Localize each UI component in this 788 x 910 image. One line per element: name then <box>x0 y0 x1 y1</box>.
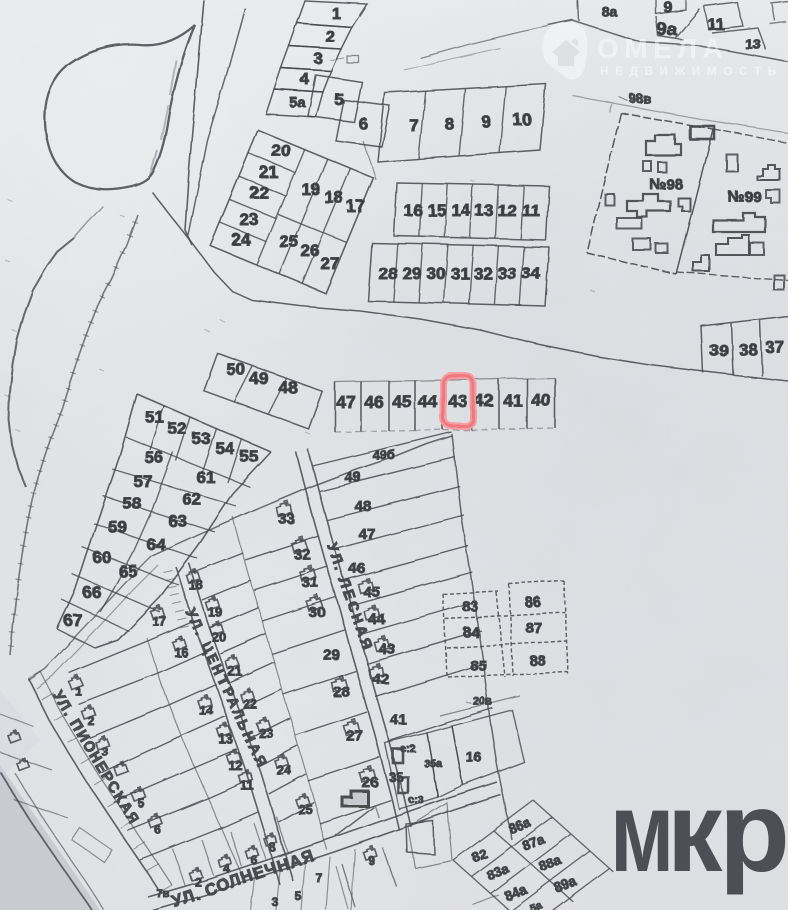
svg-text:9: 9 <box>369 854 376 868</box>
svg-text:47: 47 <box>336 392 355 412</box>
svg-text:14: 14 <box>452 201 471 220</box>
svg-text:60: 60 <box>93 548 112 567</box>
svg-text:10: 10 <box>513 110 532 129</box>
svg-text:39: 39 <box>710 341 729 360</box>
svg-text:57: 57 <box>134 472 153 491</box>
svg-text:54: 54 <box>216 439 235 458</box>
svg-text:23: 23 <box>240 210 259 229</box>
svg-text:41: 41 <box>503 391 523 411</box>
svg-text:49: 49 <box>250 369 269 388</box>
svg-text:29: 29 <box>323 646 340 663</box>
svg-text:26: 26 <box>301 241 320 260</box>
svg-text:15: 15 <box>428 201 447 220</box>
svg-text:31: 31 <box>451 264 470 283</box>
svg-text:42: 42 <box>373 671 390 688</box>
svg-text:67: 67 <box>64 611 83 630</box>
svg-text:с:2: с:2 <box>400 743 415 755</box>
svg-text:к: к <box>667 767 723 895</box>
svg-text:3: 3 <box>314 51 323 68</box>
svg-text:41: 41 <box>391 712 408 729</box>
svg-text:7: 7 <box>316 871 323 885</box>
svg-text:20в: 20в <box>474 696 493 708</box>
svg-text:42: 42 <box>474 391 494 411</box>
svg-text:35а: 35а <box>424 758 443 770</box>
svg-text:37: 37 <box>766 338 785 357</box>
svg-text:87: 87 <box>526 621 542 637</box>
svg-text:13: 13 <box>745 36 761 52</box>
svg-text:47: 47 <box>359 526 376 543</box>
svg-text:24: 24 <box>232 230 251 249</box>
svg-text:32: 32 <box>474 264 493 283</box>
svg-text:НЕДВИЖИМОСТЬ: НЕДВИЖИМОСТЬ <box>600 66 783 78</box>
svg-text:7: 7 <box>409 116 418 135</box>
svg-text:18: 18 <box>325 188 344 207</box>
svg-text:16: 16 <box>466 749 482 765</box>
svg-text:53: 53 <box>192 429 211 448</box>
svg-text:21: 21 <box>260 163 279 182</box>
svg-text:62: 62 <box>183 490 202 509</box>
svg-text:№98: №98 <box>649 176 682 193</box>
svg-text:5: 5 <box>295 889 302 903</box>
svg-text:8: 8 <box>444 114 453 133</box>
svg-text:30: 30 <box>427 264 446 283</box>
svg-text:66: 66 <box>83 583 102 602</box>
svg-text:51: 51 <box>146 408 165 427</box>
svg-text:35: 35 <box>389 770 403 785</box>
svg-text:34: 34 <box>522 264 541 283</box>
svg-text:33: 33 <box>498 264 517 283</box>
svg-text:56: 56 <box>145 448 164 467</box>
svg-text:43: 43 <box>448 391 468 411</box>
svg-text:83: 83 <box>462 599 478 615</box>
svg-text:13: 13 <box>475 201 494 220</box>
svg-text:9: 9 <box>481 112 490 131</box>
svg-text:м: м <box>610 767 674 895</box>
svg-text:27: 27 <box>321 254 340 273</box>
svg-text:49: 49 <box>345 469 362 486</box>
svg-text:4: 4 <box>301 72 310 89</box>
svg-text:29: 29 <box>403 264 422 283</box>
svg-text:65: 65 <box>119 562 138 581</box>
svg-text:44: 44 <box>418 391 438 411</box>
svg-text:№99: №99 <box>728 189 761 206</box>
svg-text:50: 50 <box>227 360 246 379</box>
svg-text:16: 16 <box>404 201 423 220</box>
svg-text:22: 22 <box>250 183 269 202</box>
svg-text:ОМЕЛА: ОМЕЛА <box>597 33 728 64</box>
svg-text:6: 6 <box>358 114 367 133</box>
svg-text:24: 24 <box>277 763 292 778</box>
svg-text:52: 52 <box>168 419 187 438</box>
svg-text:88: 88 <box>529 653 545 669</box>
svg-text:40: 40 <box>531 390 551 410</box>
svg-text:19: 19 <box>302 180 321 199</box>
svg-text:84: 84 <box>463 625 479 641</box>
svg-text:20: 20 <box>272 141 291 160</box>
svg-text:25: 25 <box>280 232 299 251</box>
svg-text:49б: 49б <box>373 448 396 463</box>
svg-text:9: 9 <box>664 0 673 17</box>
svg-text:98в: 98в <box>629 92 651 106</box>
svg-text:46: 46 <box>364 392 384 412</box>
svg-text:48: 48 <box>279 378 298 397</box>
svg-text:11: 11 <box>708 17 725 34</box>
svg-text:45: 45 <box>392 392 412 412</box>
svg-text:17: 17 <box>347 197 366 216</box>
svg-text:55: 55 <box>240 447 259 466</box>
svg-text:1: 1 <box>332 6 341 23</box>
svg-text:38: 38 <box>739 340 758 359</box>
svg-text:5: 5 <box>334 90 343 109</box>
svg-text:12: 12 <box>498 201 517 220</box>
svg-text:2: 2 <box>326 29 335 46</box>
svg-text:р: р <box>719 769 788 896</box>
svg-text:28: 28 <box>379 264 398 283</box>
svg-text:63: 63 <box>168 511 187 530</box>
svg-text:с:3: с:3 <box>408 794 423 806</box>
svg-text:46: 46 <box>349 560 366 577</box>
svg-text:59: 59 <box>109 518 128 537</box>
svg-text:61: 61 <box>197 468 216 487</box>
svg-text:5а: 5а <box>289 95 306 111</box>
svg-text:58: 58 <box>123 494 142 513</box>
svg-text:85: 85 <box>470 658 486 674</box>
svg-text:8а: 8а <box>601 3 617 19</box>
svg-text:86: 86 <box>525 595 541 611</box>
svg-text:48: 48 <box>355 498 372 515</box>
svg-text:11: 11 <box>522 201 540 220</box>
